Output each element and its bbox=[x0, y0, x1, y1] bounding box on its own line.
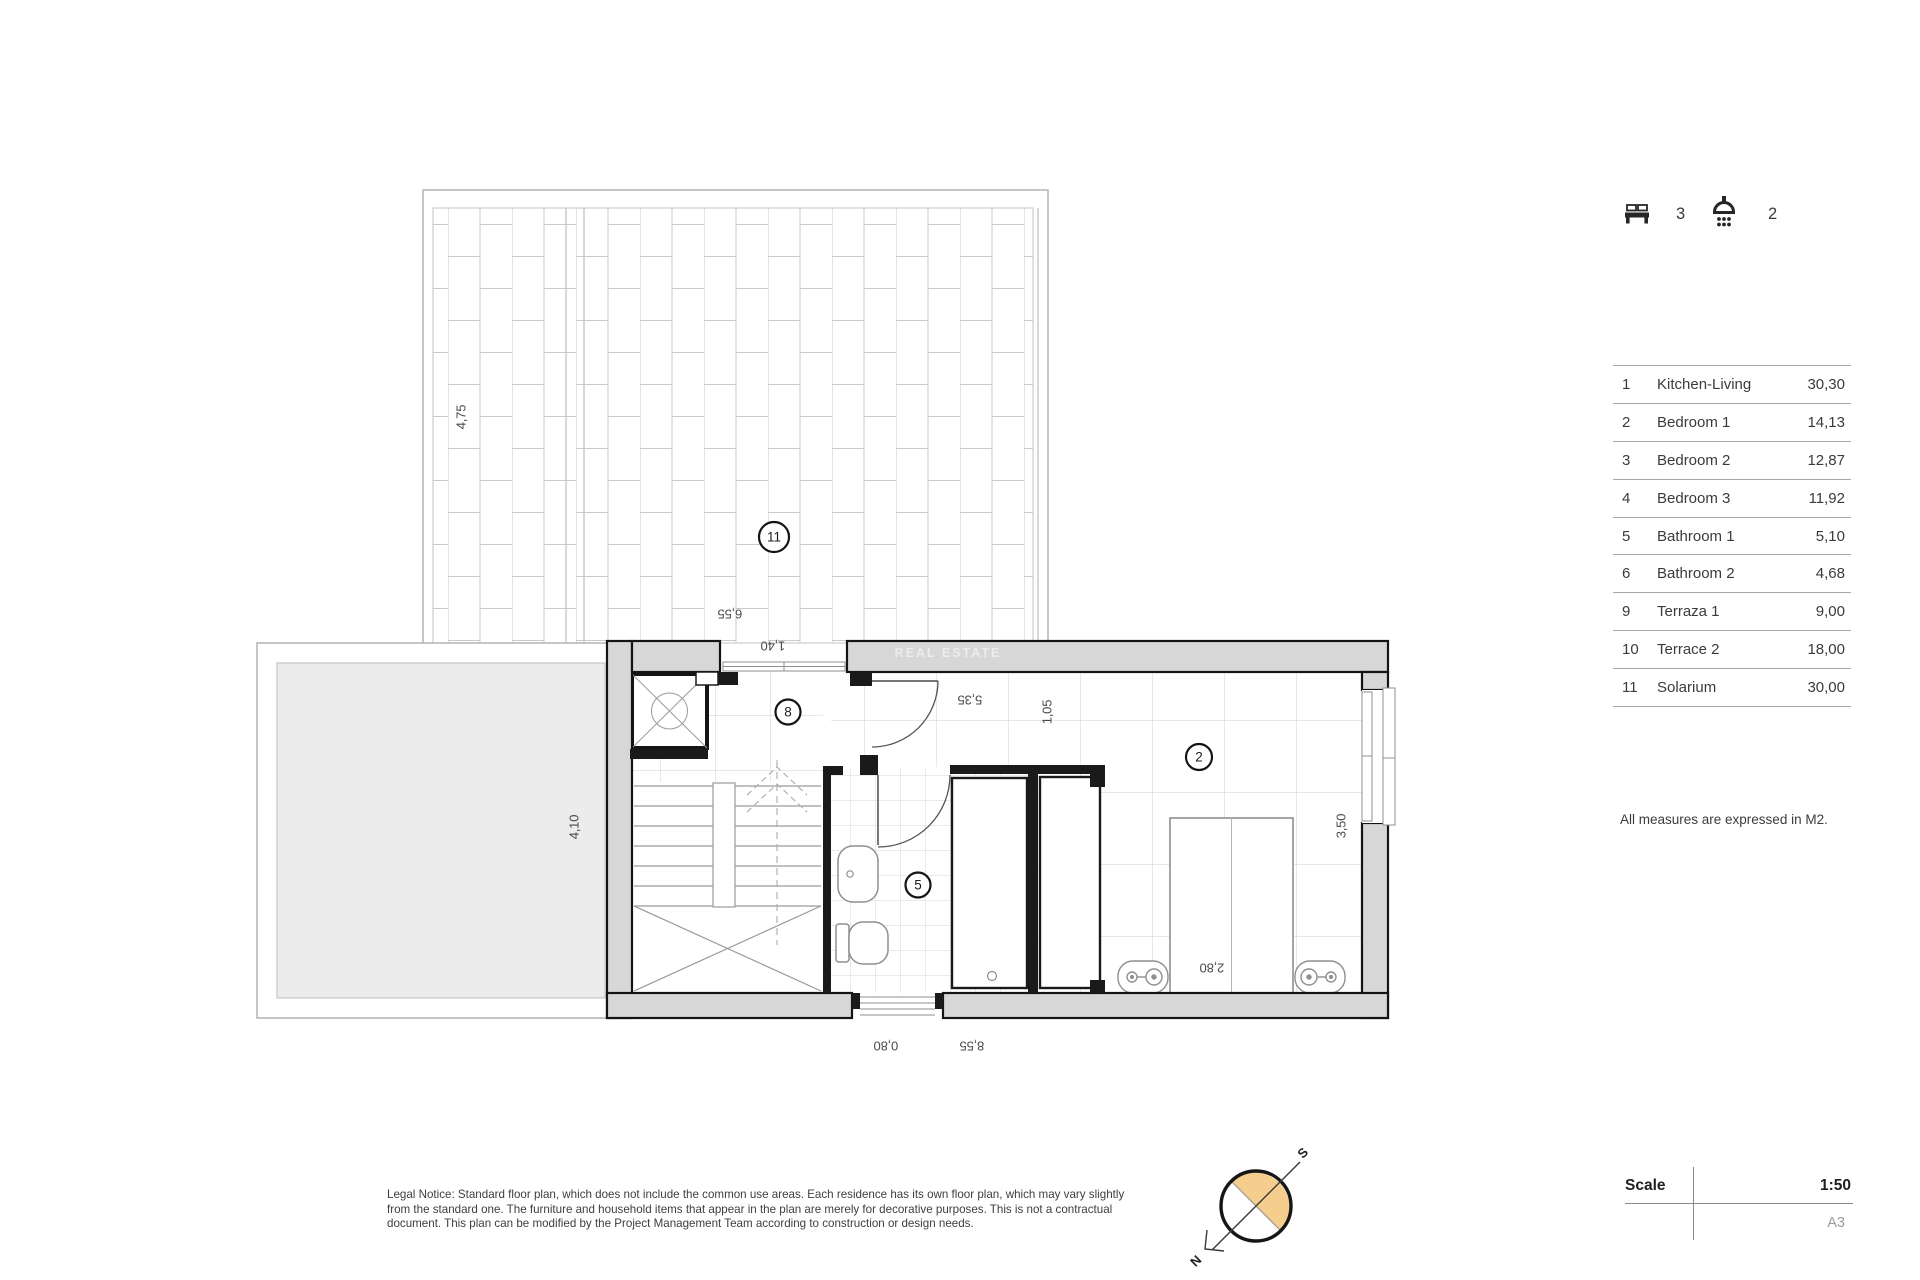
shower-enclosure bbox=[952, 778, 1027, 988]
legend-row: 9 Terraza 1 9,00 bbox=[1613, 592, 1851, 630]
dim-bed-zone: 2,80 bbox=[1200, 961, 1225, 976]
dim-terrace-height: 4,10 bbox=[567, 815, 582, 840]
dim-corridor-length: 5,35 bbox=[958, 693, 983, 708]
legend-room-area: 18,00 bbox=[1785, 641, 1851, 658]
legal-notice-line-1: Legal Notice: Standard floor plan, which… bbox=[387, 1188, 1177, 1203]
legend-row: 3 Bedroom 2 12,87 bbox=[1613, 441, 1851, 479]
room-number-8: 8 bbox=[784, 705, 792, 720]
scale-value: 1:50 bbox=[1820, 1177, 1851, 1195]
legend-room-name: Bathroom 1 bbox=[1657, 528, 1785, 545]
legend-row: 1 Kitchen-Living 30,30 bbox=[1613, 365, 1851, 403]
scale-label: Scale bbox=[1625, 1177, 1666, 1195]
unit-stats: 3 2 bbox=[1622, 194, 1802, 238]
nightstand-left bbox=[1118, 961, 1168, 993]
dim-solarium-height: 4,75 bbox=[454, 405, 469, 430]
room-label-landing: 8 bbox=[776, 700, 801, 725]
legend-room-name: Solarium bbox=[1657, 679, 1785, 696]
legend-room-area: 11,92 bbox=[1785, 490, 1851, 507]
legal-notice-line-2: from the standard one. The furniture and… bbox=[387, 1203, 1177, 1218]
measures-note: All measures are expressed in M2. bbox=[1620, 812, 1828, 827]
room-label-bathroom: 5 bbox=[906, 873, 931, 898]
legend-room-number: 9 bbox=[1613, 603, 1657, 620]
bedroom-count: 3 bbox=[1676, 205, 1685, 224]
legend-room-number: 10 bbox=[1613, 641, 1657, 658]
legend-room-name: Terrace 2 bbox=[1657, 641, 1785, 658]
dim-opening-width: 1,40 bbox=[761, 639, 786, 654]
compass-north-label: N bbox=[1187, 1252, 1204, 1269]
room-label-bedroom: 2 bbox=[1186, 744, 1212, 770]
compass-rose: N S bbox=[1187, 1144, 1311, 1269]
wardrobe bbox=[1040, 777, 1100, 988]
dim-window-width: 0,80 bbox=[874, 1039, 899, 1054]
staircase bbox=[634, 760, 821, 991]
legend-room-area: 12,87 bbox=[1785, 452, 1851, 469]
legend-room-number: 6 bbox=[1613, 565, 1657, 582]
dim-bedroom-width: 3,50 bbox=[1334, 814, 1349, 839]
legend-room-name: Bedroom 3 bbox=[1657, 490, 1785, 507]
window-right bbox=[1362, 688, 1395, 825]
bed-icon bbox=[1624, 204, 1650, 224]
legend-room-number: 2 bbox=[1613, 414, 1657, 431]
sheet-size: A3 bbox=[1827, 1215, 1845, 1231]
legend-room-name: Bedroom 2 bbox=[1657, 452, 1785, 469]
legend-room-area: 30,30 bbox=[1785, 376, 1851, 393]
room-number-11: 11 bbox=[767, 530, 781, 545]
legend-row: 11 Solarium 30,00 bbox=[1613, 668, 1851, 707]
legend-room-area: 14,13 bbox=[1785, 414, 1851, 431]
sliding-door-track bbox=[723, 662, 845, 671]
dim-total-width: 8,55 bbox=[960, 1039, 985, 1054]
titleblock-vertical-rule bbox=[1693, 1167, 1694, 1240]
legend-room-number: 5 bbox=[1613, 528, 1657, 545]
compass-south-label: S bbox=[1294, 1144, 1311, 1161]
legend-row: 4 Bedroom 3 11,92 bbox=[1613, 479, 1851, 517]
titleblock-horizontal-rule bbox=[1625, 1203, 1853, 1204]
legend-room-name: Bathroom 2 bbox=[1657, 565, 1785, 582]
legend-row: 10 Terrace 2 18,00 bbox=[1613, 630, 1851, 668]
legend-row: 6 Bathroom 2 4,68 bbox=[1613, 554, 1851, 592]
watermark-text: REAL ESTATE bbox=[895, 646, 1002, 660]
legend-room-area: 4,68 bbox=[1785, 565, 1851, 582]
legend-row: 5 Bathroom 1 5,10 bbox=[1613, 517, 1851, 555]
bed bbox=[1170, 818, 1293, 993]
toilet bbox=[836, 922, 888, 964]
shower-icon bbox=[1712, 196, 1736, 228]
legend-room-name: Kitchen-Living bbox=[1657, 376, 1785, 393]
room-legend-table: 1 Kitchen-Living 30,30 2 Bedroom 1 14,13… bbox=[1613, 365, 1851, 707]
room-number-2: 2 bbox=[1195, 750, 1203, 765]
legend-room-area: 5,10 bbox=[1785, 528, 1851, 545]
legend-room-name: Terraza 1 bbox=[1657, 603, 1785, 620]
legal-notice: Legal Notice: Standard floor plan, which… bbox=[387, 1188, 1177, 1232]
dim-solarium-width: 6,55 bbox=[718, 607, 743, 622]
room-label-solarium: 11 bbox=[759, 522, 789, 552]
legend-room-number: 1 bbox=[1613, 376, 1657, 393]
solarium-area bbox=[423, 190, 1048, 643]
terrace-area bbox=[257, 643, 608, 1018]
legend-room-area: 30,00 bbox=[1785, 679, 1851, 696]
legend-room-area: 9,00 bbox=[1785, 603, 1851, 620]
floorplan-page: { "header": { "bedrooms": "3", "bathroom… bbox=[0, 0, 1920, 1280]
title-block: Scale 1:50 A3 bbox=[1625, 1160, 1853, 1245]
legend-room-number: 3 bbox=[1613, 452, 1657, 469]
legend-room-name: Bedroom 1 bbox=[1657, 414, 1785, 431]
legend-room-number: 11 bbox=[1613, 679, 1657, 696]
window-bottom bbox=[860, 993, 935, 1018]
legend-row: 2 Bedroom 1 14,13 bbox=[1613, 403, 1851, 441]
dim-corridor-width: 1,05 bbox=[1040, 700, 1055, 725]
legal-notice-line-3: document. This plan can be modified by t… bbox=[387, 1217, 1177, 1232]
legend-room-number: 4 bbox=[1613, 490, 1657, 507]
nightstand-right bbox=[1295, 961, 1345, 993]
room-number-5: 5 bbox=[914, 878, 922, 893]
bathroom-count: 2 bbox=[1768, 205, 1777, 224]
bathroom-sink bbox=[838, 846, 878, 902]
